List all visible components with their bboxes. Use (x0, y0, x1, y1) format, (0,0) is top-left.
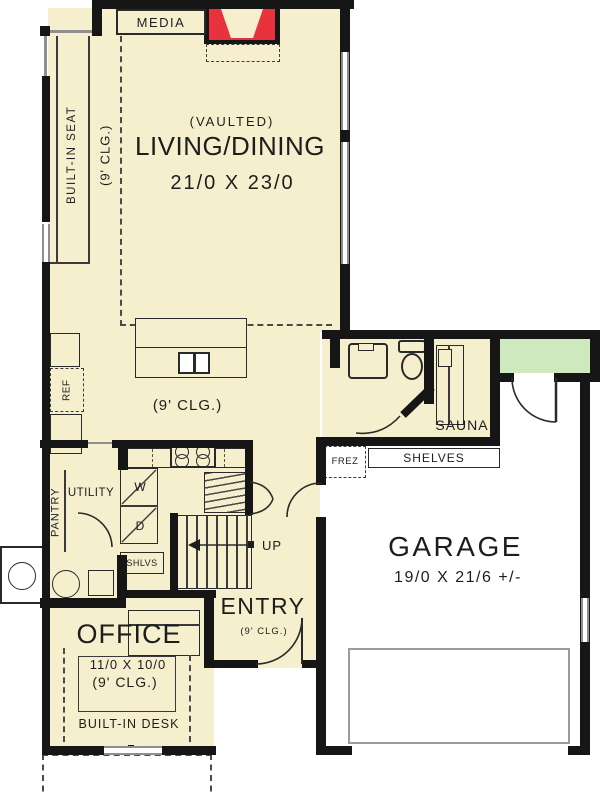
window (42, 224, 50, 262)
office-title: OFFICE (66, 617, 192, 651)
hearth-outline (206, 44, 280, 62)
wall (102, 0, 354, 9)
counter-left-lower (50, 414, 82, 454)
stair-tread (236, 515, 238, 589)
stair-tread (216, 515, 218, 589)
utility-shelves-label: SHLVS (120, 552, 164, 574)
exterior-unit (8, 562, 36, 590)
entry-title: ENTRY (210, 592, 316, 620)
counter-left-upper (50, 333, 80, 367)
freezer-label: FREZ (324, 446, 366, 478)
window (50, 30, 92, 33)
window (581, 598, 589, 642)
wall (170, 513, 178, 591)
kitchen-ceiling-label: (9' CLG.) (135, 395, 240, 415)
wall (554, 373, 600, 382)
opening-header (88, 442, 112, 444)
garage-title: GARAGE (378, 531, 533, 563)
living-room-title: LIVING/DINING (116, 130, 344, 162)
wall (162, 746, 216, 755)
burner (196, 454, 210, 468)
wall (42, 746, 104, 755)
office-dims: 11/0 X 10/0 (72, 657, 184, 671)
burner (175, 454, 189, 468)
wall (126, 590, 216, 598)
sauna-heater (438, 349, 452, 367)
wall (322, 330, 600, 339)
seat-ceiling-label: (9' CLG.) (92, 90, 118, 220)
built-in-desk-label: BUILT-IN DESK (64, 717, 194, 732)
counter-divider (152, 449, 153, 467)
seat-edge-bottom (50, 262, 90, 264)
vault-line-vertical (120, 36, 122, 326)
toilet-tank (398, 340, 426, 353)
sauna-label: SAUNA (432, 416, 492, 433)
bath-sink-faucet (358, 343, 374, 351)
island-sink-basin-right (194, 352, 210, 374)
wall (316, 517, 326, 747)
stair-tread (186, 515, 188, 589)
stoop-outline (42, 754, 212, 795)
seat-edge-right (88, 36, 90, 262)
stair-tread (206, 515, 208, 589)
window (341, 52, 349, 130)
wall (118, 440, 128, 470)
garage-door-panel (348, 648, 570, 744)
garage-dims: 19/0 X 21/6 +/- (366, 569, 550, 587)
pantry-label: PANTRY (47, 472, 64, 552)
wall (245, 440, 253, 515)
kitchen-island-top (135, 318, 247, 348)
floor-plan: MEDIA BUILT-IN SEAT (9' CLG.) (VAULTED) … (0, 0, 600, 795)
wall (40, 26, 50, 36)
media-label: MEDIA (116, 9, 206, 35)
utility-equipment (88, 570, 114, 596)
wall (330, 338, 340, 368)
garage-shelves-label: SHELVES (368, 448, 500, 468)
wall (40, 440, 88, 448)
wall (123, 440, 247, 448)
counter-divider (224, 449, 225, 467)
stair-winders (204, 472, 248, 513)
stair-tread (196, 515, 198, 589)
island-sink-basin-left (178, 352, 195, 374)
stair-tread (226, 515, 228, 589)
toilet-bowl (401, 353, 423, 380)
porch-door-arc (512, 378, 556, 422)
dryer-label: D (128, 518, 152, 534)
office-ceiling-label: (9' CLG.) (72, 673, 178, 690)
washer-label: W (128, 479, 152, 495)
entry-ceiling-label: (9' CLG.) (228, 626, 300, 638)
utility-sink (52, 570, 80, 598)
pantry-shelf-line (64, 470, 66, 552)
stairs-up-label: UP (256, 537, 288, 553)
wall (580, 382, 590, 755)
stair-tread (246, 515, 248, 589)
porch-floor (498, 339, 600, 373)
wall (316, 746, 352, 755)
wall (424, 336, 434, 404)
living-room-dims: 21/0 X 23/0 (140, 171, 325, 195)
wall (42, 76, 50, 222)
wall (326, 437, 500, 446)
built-in-seat-label: BUILT-IN SEAT (58, 60, 86, 250)
refrigerator-label: REF (52, 370, 82, 410)
wall (92, 0, 102, 36)
wall (204, 660, 258, 668)
washer-dryer-divider (120, 505, 158, 507)
window (44, 36, 47, 76)
living-vaulted-note: (VAULTED) (157, 113, 307, 129)
wall (40, 598, 126, 608)
utility-label: UTILITY (63, 486, 119, 502)
window (104, 746, 162, 755)
